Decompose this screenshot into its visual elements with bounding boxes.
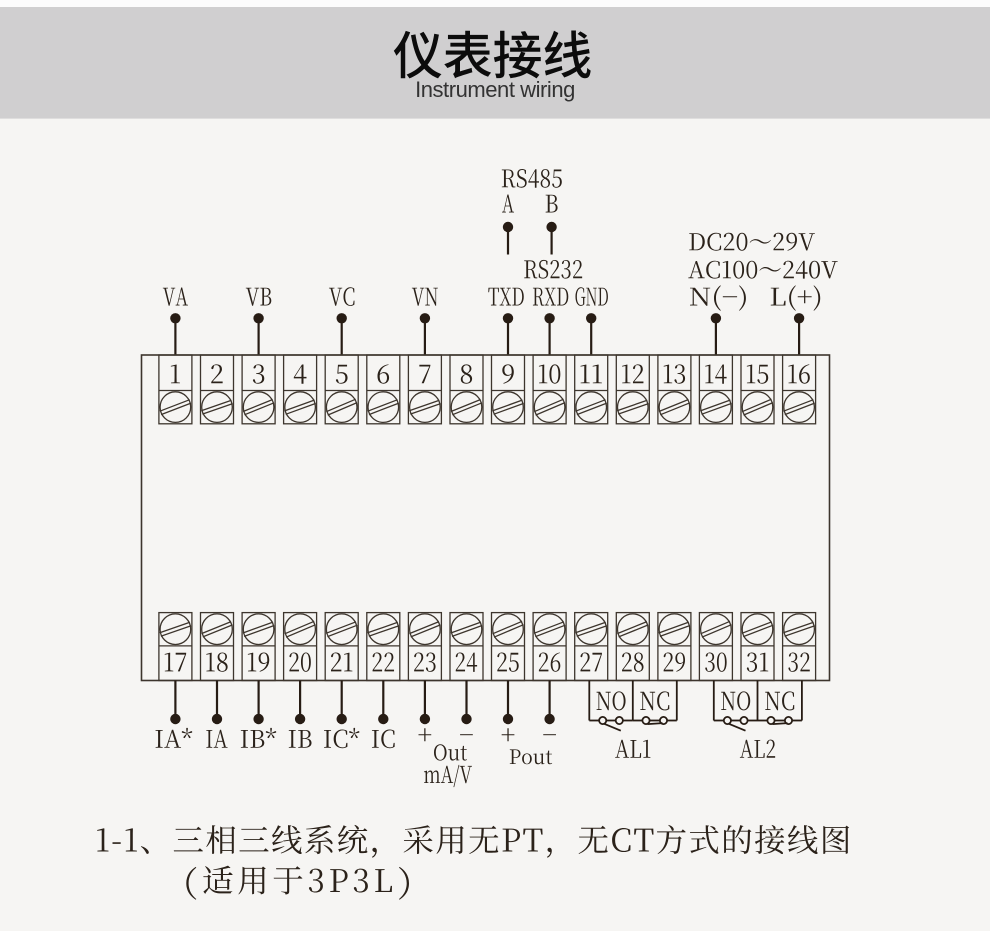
svg-text:Instrument wiring: Instrument wiring bbox=[415, 77, 575, 102]
